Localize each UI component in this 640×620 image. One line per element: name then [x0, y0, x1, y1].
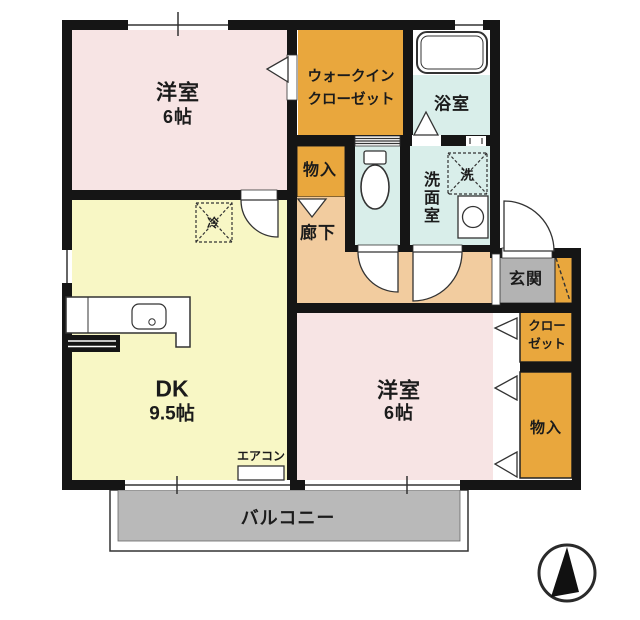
wall: [345, 135, 355, 252]
entrance-label: 玄関: [509, 272, 543, 288]
window-bath-vent: [455, 20, 483, 30]
bathroom-label: 浴室: [434, 96, 470, 113]
hallway-label: 廊下: [300, 225, 336, 242]
wall: [572, 248, 581, 490]
compass: [539, 545, 595, 601]
bedroom-bottom-label: 洋室: [377, 381, 421, 402]
washroom-door-leaf: [413, 245, 462, 252]
wall: [400, 146, 410, 252]
dk-size: 9.5帖: [149, 405, 194, 424]
wall: [287, 303, 581, 313]
dk-label: DK: [155, 378, 188, 401]
balcony-label: バルコニー: [241, 509, 336, 527]
bathtub-icon: [417, 32, 487, 73]
bedroom-bottom-size: 6帖: [384, 404, 414, 422]
walk-in-closet-label-2: クローゼット: [308, 93, 395, 108]
window-dk-left: [62, 250, 72, 283]
washer-label: 洗: [460, 169, 473, 182]
wall: [403, 20, 413, 146]
dk-door-leaf: [241, 190, 277, 200]
refrigerator-label: 冷: [207, 217, 219, 229]
washroom-label: 洗面室: [421, 171, 437, 225]
toilet-bowl-icon: [361, 165, 389, 209]
storage-right-label: 物入: [530, 421, 562, 436]
toilet-door-leaf: [358, 245, 398, 252]
room-hallway-west: [297, 197, 345, 305]
kitchen-range-icon: [64, 335, 120, 352]
kitchen-sink-icon: [132, 304, 166, 329]
floorplan: 洋室 6帖 ウォークイン クローゼット 浴室 物入 洗面室 洗 廊下 冷 玄関 …: [0, 0, 640, 620]
window-toilet-louver: [355, 136, 400, 146]
aircon-unit-icon: [238, 466, 284, 480]
aircon-label: エアコン: [237, 450, 285, 462]
window-washroom-vent: [466, 136, 486, 146]
washbasin-bowl-icon: [463, 207, 484, 228]
toilet-tank-icon: [364, 151, 386, 164]
entrance-door-arc: [504, 201, 554, 251]
storage-top-label: 物入: [303, 163, 337, 179]
closet-label-2: ゼット: [528, 338, 566, 351]
bedroom-top-size: 6帖: [163, 108, 193, 126]
walk-in-closet-label-1: ウォークイン: [308, 70, 395, 85]
kitchen-sink-drain: [149, 319, 155, 325]
wall: [520, 362, 572, 372]
bath-door-gap: [412, 135, 441, 146]
bedroom-top-label: 洋室: [156, 83, 200, 104]
entrance-step: [492, 254, 500, 305]
closet-label-1: クロー: [528, 320, 566, 333]
wall: [62, 20, 500, 30]
